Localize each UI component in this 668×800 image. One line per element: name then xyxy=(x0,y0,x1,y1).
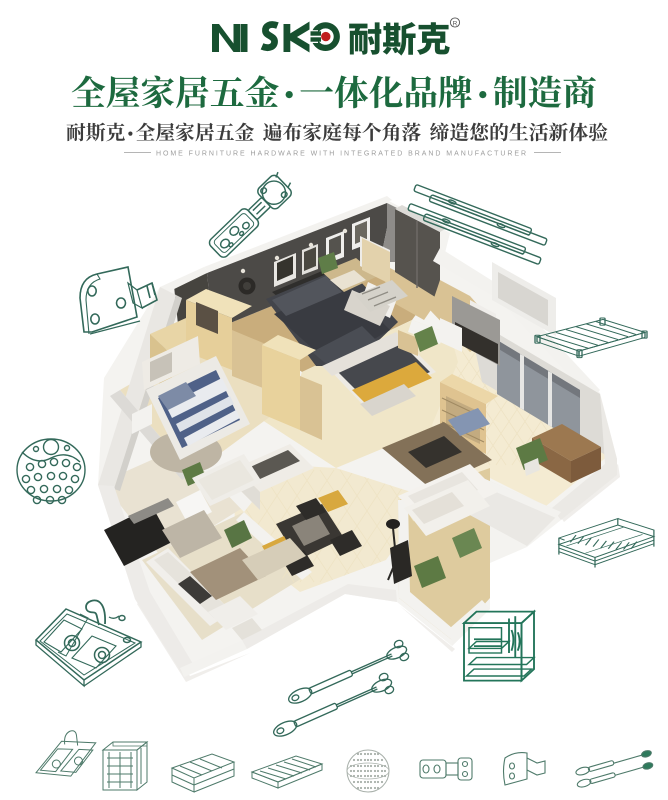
svg-text:R: R xyxy=(453,21,458,28)
svg-text:HOME FURNITURE HARDWARE WITH I: HOME FURNITURE HARDWARE WITH INTEGRATED … xyxy=(156,151,528,158)
